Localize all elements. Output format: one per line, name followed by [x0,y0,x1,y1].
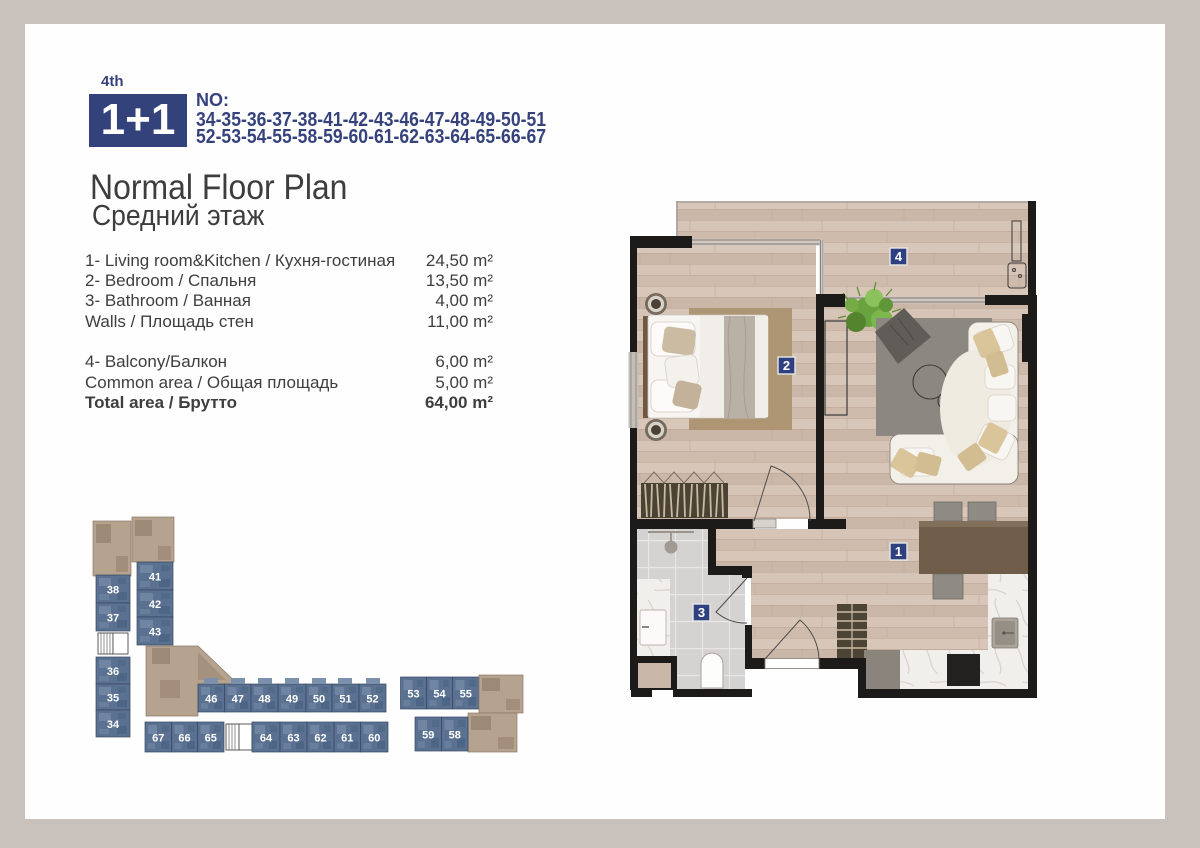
svg-text:3: 3 [698,605,705,620]
svg-text:54: 54 [433,689,446,701]
svg-text:46: 46 [205,694,217,706]
svg-text:49: 49 [286,694,298,706]
svg-text:62: 62 [314,733,326,745]
svg-text:41: 41 [149,572,161,584]
svg-text:48: 48 [258,694,270,706]
svg-text:67: 67 [152,733,164,745]
svg-text:1: 1 [895,544,902,559]
svg-text:47: 47 [232,694,244,706]
svg-text:55: 55 [460,689,472,701]
svg-text:64: 64 [260,733,273,745]
svg-text:52: 52 [366,694,378,706]
svg-text:63: 63 [287,733,299,745]
svg-text:36: 36 [107,666,119,678]
svg-text:58: 58 [449,730,461,742]
svg-text:51: 51 [339,694,351,706]
svg-text:60: 60 [368,733,380,745]
svg-text:35: 35 [107,693,119,705]
svg-text:2: 2 [783,358,790,373]
svg-text:66: 66 [178,733,190,745]
svg-text:53: 53 [407,689,419,701]
svg-text:43: 43 [149,627,161,639]
svg-text:37: 37 [107,613,119,625]
svg-text:4: 4 [895,249,903,264]
svg-text:34: 34 [107,719,120,731]
svg-text:42: 42 [149,599,161,611]
svg-text:59: 59 [422,730,434,742]
svg-text:50: 50 [313,694,325,706]
svg-text:38: 38 [107,585,119,597]
svg-text:65: 65 [205,733,217,745]
svg-text:61: 61 [341,733,353,745]
